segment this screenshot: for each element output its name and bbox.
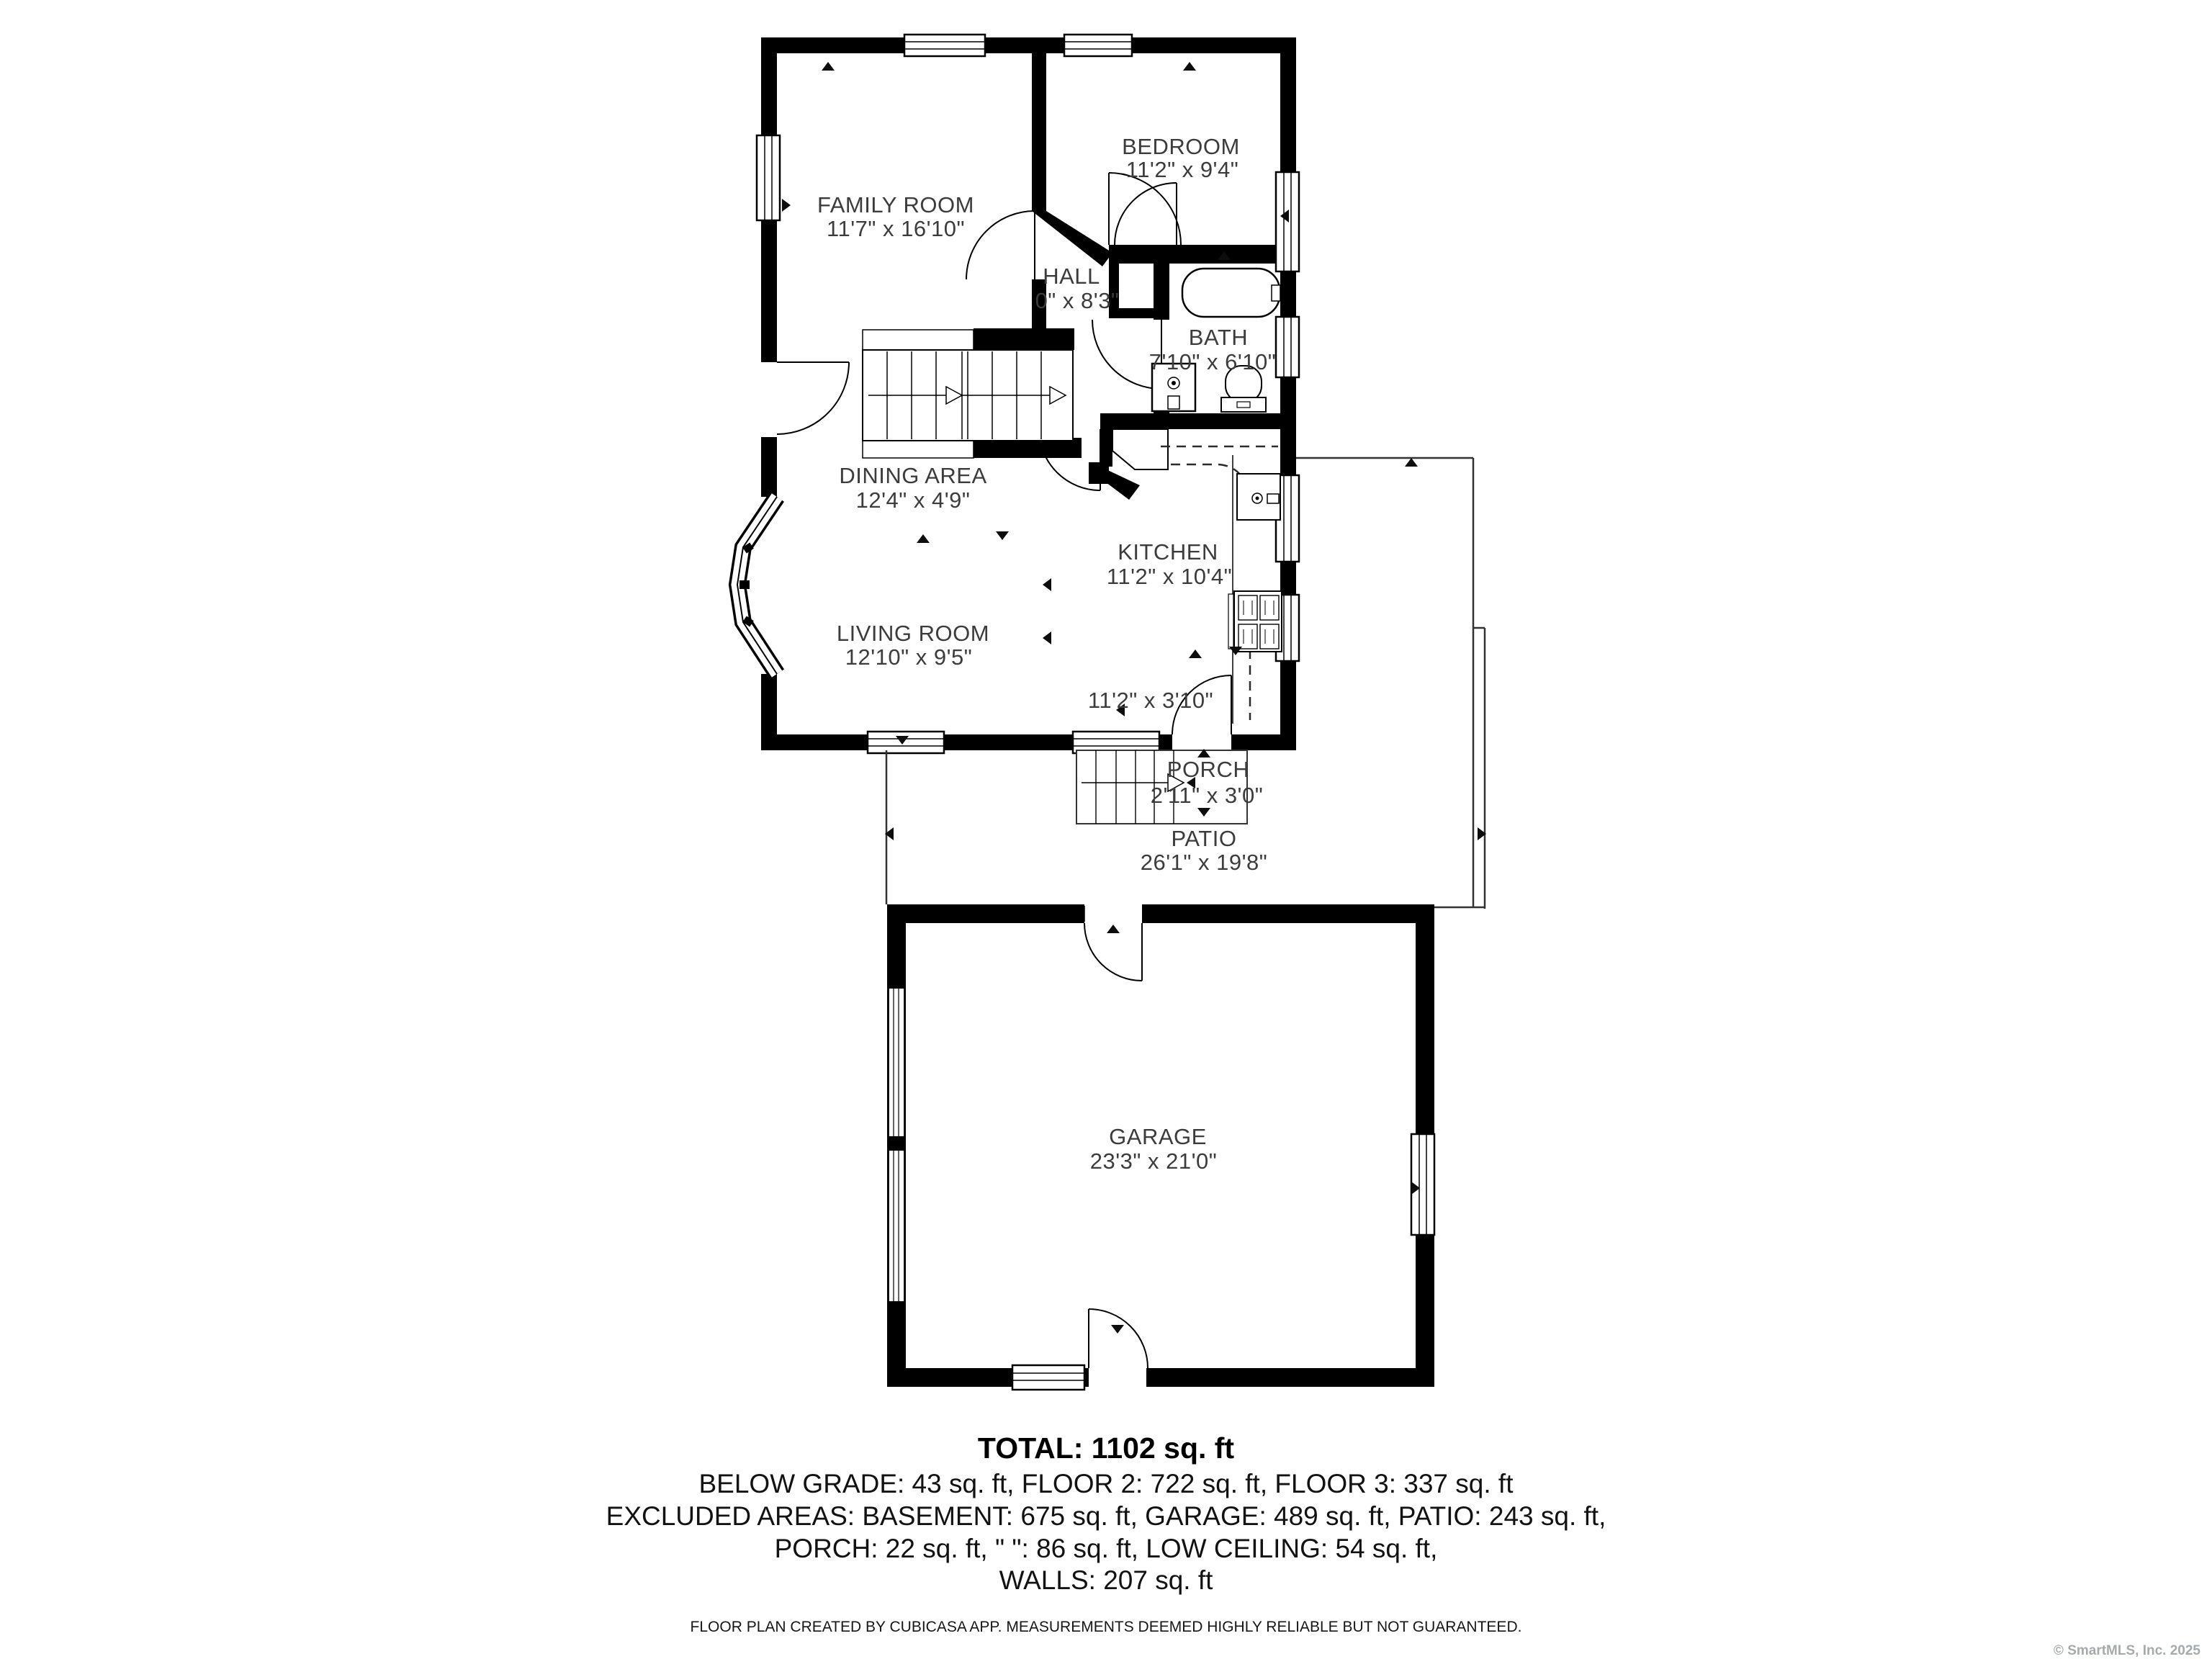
porch-door — [1172, 675, 1231, 750]
camera-marker-icon — [1107, 925, 1120, 933]
tub-faucet-icon — [1272, 285, 1280, 301]
family-room-door — [966, 211, 1035, 279]
family-room-label: FAMILY ROOM — [817, 192, 974, 217]
bath-dims: 7'10" x 6'10" — [1149, 349, 1277, 374]
camera-marker-icon — [917, 534, 930, 543]
walls-area: WALLS: 207 sq. ft — [0, 1565, 2212, 1596]
camera-marker-icon — [1189, 649, 1202, 658]
watermark: © SmartMLS, Inc. 2025 — [2054, 1643, 2200, 1659]
dining-area-dims: 12'4" x 4'9" — [856, 487, 971, 513]
camera-marker-icon — [1183, 62, 1196, 71]
patio-dims: 26'1" x 19'8" — [1141, 850, 1268, 875]
camera-marker-icon — [1043, 631, 1051, 644]
refrigerator — [1112, 429, 1168, 469]
nook-dims: 11'2" x 3'10" — [1088, 688, 1213, 713]
entry-door — [760, 362, 849, 437]
closet-door — [1115, 183, 1177, 245]
hall-label: HALL — [1043, 264, 1100, 289]
window-bedroom-top — [1064, 35, 1132, 56]
bath-label: BATH — [1189, 325, 1248, 350]
camera-marker-icon — [822, 62, 835, 71]
bedroom-label: BEDROOM — [1122, 134, 1240, 159]
kitchen-label: KITCHEN — [1118, 539, 1218, 565]
floor-plan-page: FAMILY ROOM 11'7" x 16'10" BEDROOM 11'2"… — [0, 0, 2212, 1659]
garage-entry-door — [1084, 904, 1142, 981]
window-bedroom-right — [1276, 172, 1299, 271]
camera-marker-icon — [1111, 1325, 1124, 1334]
porch-dims: 2'11" x 3'0" — [1151, 783, 1263, 808]
dining-area-label: DINING AREA — [839, 463, 986, 488]
garage-dims: 23'3" x 21'0" — [1090, 1148, 1218, 1174]
porch-label: PORCH — [1167, 757, 1249, 782]
garage-window-bottom — [1012, 1365, 1084, 1390]
camera-marker-icon — [1405, 458, 1418, 467]
camera-marker-icon — [996, 531, 1009, 540]
living-room-dims: 12'10" x 9'5" — [845, 644, 973, 670]
bathtub — [1182, 269, 1280, 317]
window-living-bottom — [868, 732, 944, 753]
excluded-areas: EXCLUDED AREAS: BASEMENT: 675 sq. ft, GA… — [0, 1501, 2212, 1532]
disclaimer: FLOOR PLAN CREATED BY CUBICASA APP. MEAS… — [0, 1619, 2212, 1636]
hall-dims: 0" x 8'3" — [1035, 288, 1120, 313]
window-family-top — [904, 35, 985, 56]
garage-back-door — [1089, 1309, 1148, 1387]
bay-window — [737, 497, 778, 674]
family-room-dims: 11'7" x 16'10" — [827, 216, 965, 241]
garage-label: GARAGE — [1109, 1124, 1207, 1149]
bedroom-dims: 11'2" x 9'4" — [1126, 157, 1238, 182]
stove — [1228, 591, 1282, 652]
window-family-left — [757, 135, 780, 220]
floor-plan-drawing: FAMILY ROOM 11'7" x 16'10" BEDROOM 11'2"… — [0, 0, 2212, 1659]
kitchen-dims: 11'2" x 10'4" — [1107, 564, 1232, 589]
floor-areas: BELOW GRADE: 43 sq. ft, FLOOR 2: 722 sq.… — [0, 1469, 2212, 1499]
kitchen-sink — [1237, 474, 1280, 520]
garage-overhead-door — [887, 988, 906, 1302]
camera-marker-icon — [1043, 578, 1051, 591]
excluded-areas-2: PORCH: 22 sq. ft, " ": 86 sq. ft, LOW CE… — [0, 1534, 2212, 1564]
living-room-label: LIVING ROOM — [837, 621, 989, 646]
window-bath-right — [1276, 317, 1299, 377]
patio-label: PATIO — [1172, 826, 1237, 851]
camera-marker-icon — [782, 199, 791, 212]
total-area: TOTAL: 1102 sq. ft — [0, 1431, 2212, 1465]
